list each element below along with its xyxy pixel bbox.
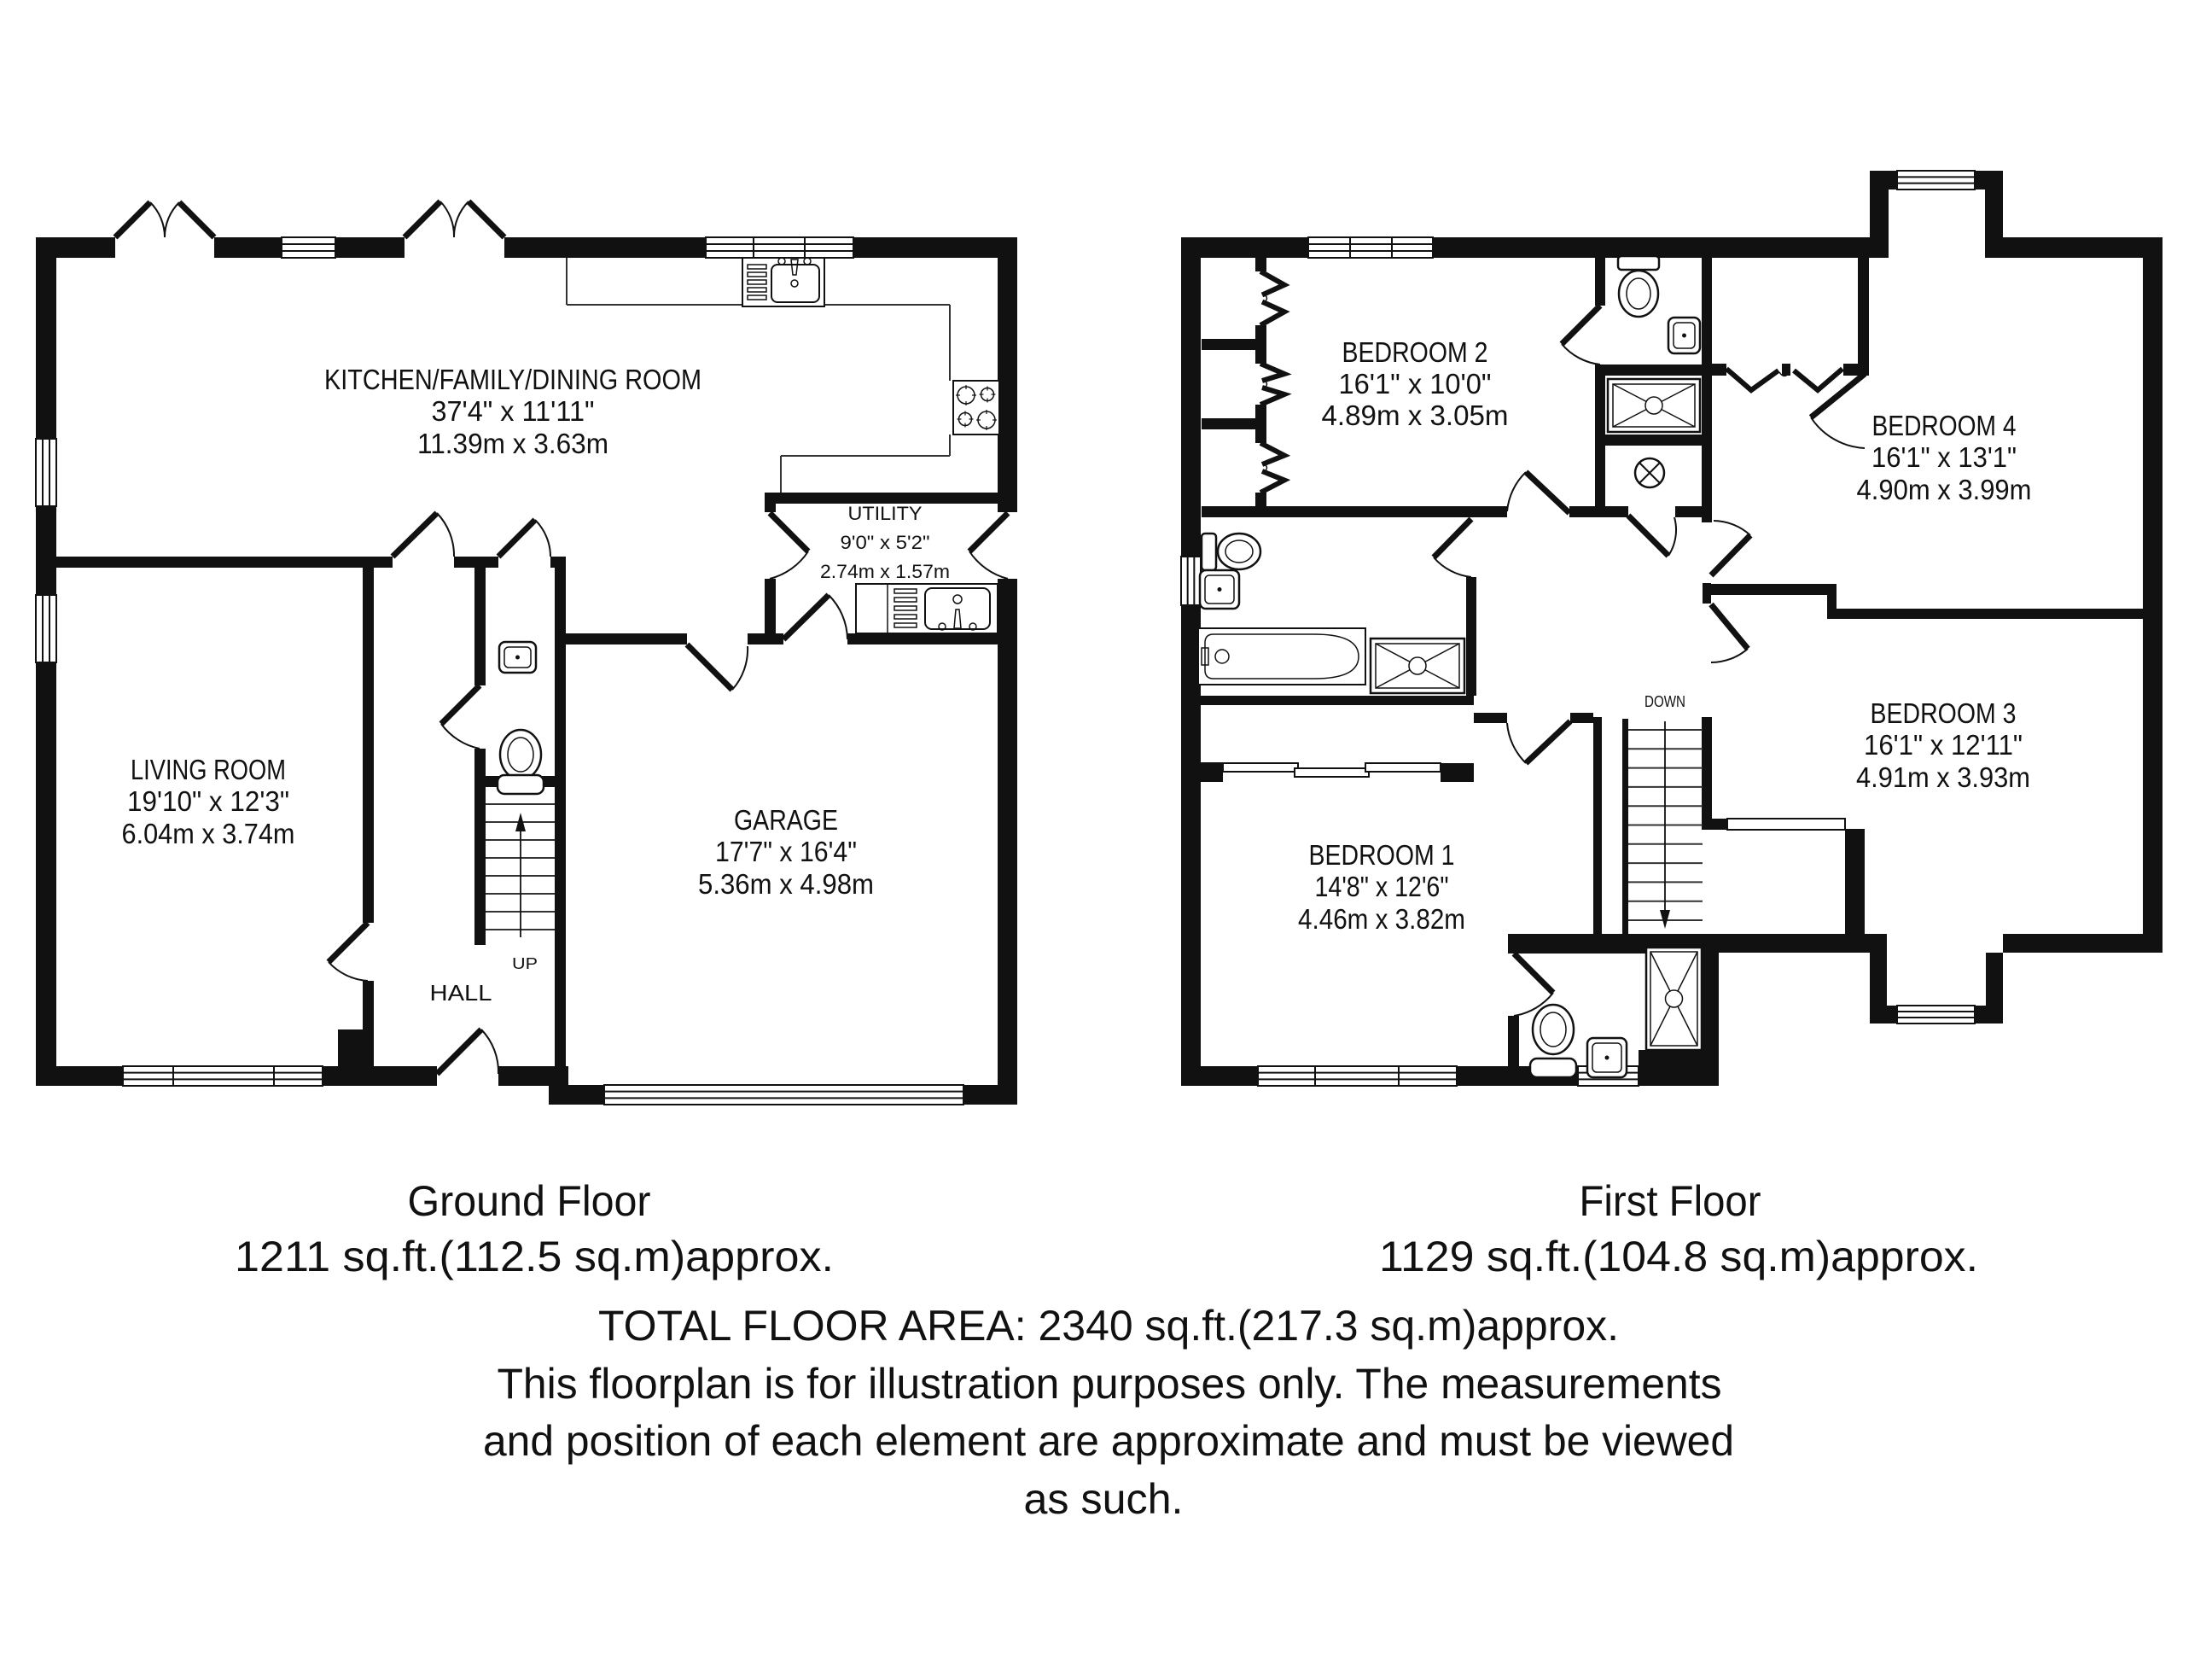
svg-text:5.36m x 4.98m: 5.36m x 4.98m: [698, 868, 874, 900]
svg-text:16'1" x 13'1": 16'1" x 13'1": [1871, 441, 2017, 473]
svg-text:BEDROOM 1: BEDROOM 1: [1309, 839, 1455, 871]
svg-text:BEDROOM 3: BEDROOM 3: [1871, 697, 2017, 729]
svg-text:2.74m x 1.57m: 2.74m x 1.57m: [820, 561, 950, 582]
svg-text:11.39m x 3.63m: 11.39m x 3.63m: [417, 428, 608, 459]
svg-text:4.91m x 3.93m: 4.91m x 3.93m: [1856, 761, 2030, 793]
svg-text:as such.: as such.: [1024, 1475, 1184, 1523]
svg-text:Ground Floor: Ground Floor: [408, 1177, 651, 1225]
svg-text:1129 sq.ft.(104.8 sq.m)approx.: 1129 sq.ft.(104.8 sq.m)approx.: [1379, 1233, 1978, 1280]
svg-text:16'1" x 12'11": 16'1" x 12'11": [1864, 729, 2023, 761]
svg-text:19'10" x 12'3": 19'10" x 12'3": [127, 785, 289, 817]
svg-text:4.89m x 3.05m: 4.89m x 3.05m: [1322, 400, 1509, 431]
svg-text:TOTAL FLOOR AREA: 2340 sq.ft.(: TOTAL FLOOR AREA: 2340 sq.ft.(217.3 sq.m…: [598, 1302, 1619, 1350]
svg-text:4.90m x 3.99m: 4.90m x 3.99m: [1857, 474, 2032, 505]
svg-text:BEDROOM 2: BEDROOM 2: [1342, 336, 1488, 368]
svg-text:This floorplan is for illustra: This floorplan is for illustration purpo…: [498, 1360, 1722, 1408]
svg-text:14'8" x 12'6": 14'8" x 12'6": [1315, 871, 1449, 902]
svg-text:UTILITY: UTILITY: [848, 503, 923, 524]
svg-text:4.46m x 3.82m: 4.46m x 3.82m: [1298, 903, 1465, 935]
svg-text:KITCHEN/FAMILY/DINING ROOM: KITCHEN/FAMILY/DINING ROOM: [324, 364, 701, 395]
svg-text:37'4" x 11'11": 37'4" x 11'11": [432, 395, 595, 427]
svg-text:9'0" x 5'2": 9'0" x 5'2": [841, 532, 930, 553]
svg-text:BEDROOM 4: BEDROOM 4: [1872, 410, 2017, 441]
svg-text:17'7" x 16'4": 17'7" x 16'4": [715, 836, 857, 867]
svg-text:LIVING ROOM: LIVING ROOM: [131, 754, 286, 785]
svg-text:1211 sq.ft.(112.5 sq.m)approx.: 1211 sq.ft.(112.5 sq.m)approx.: [235, 1233, 834, 1280]
svg-text:16'1" x 10'0": 16'1" x 10'0": [1339, 368, 1492, 400]
svg-text:6.04m x 3.74m: 6.04m x 3.74m: [122, 818, 295, 849]
svg-text:DOWN: DOWN: [1644, 693, 1685, 710]
svg-text:HALL: HALL: [430, 980, 492, 1006]
svg-text:First Floor: First Floor: [1580, 1177, 1761, 1225]
svg-text:GARAGE: GARAGE: [734, 804, 838, 836]
svg-text:and position of each element a: and position of each element are approxi…: [483, 1417, 1734, 1465]
svg-text:UP: UP: [512, 955, 538, 972]
